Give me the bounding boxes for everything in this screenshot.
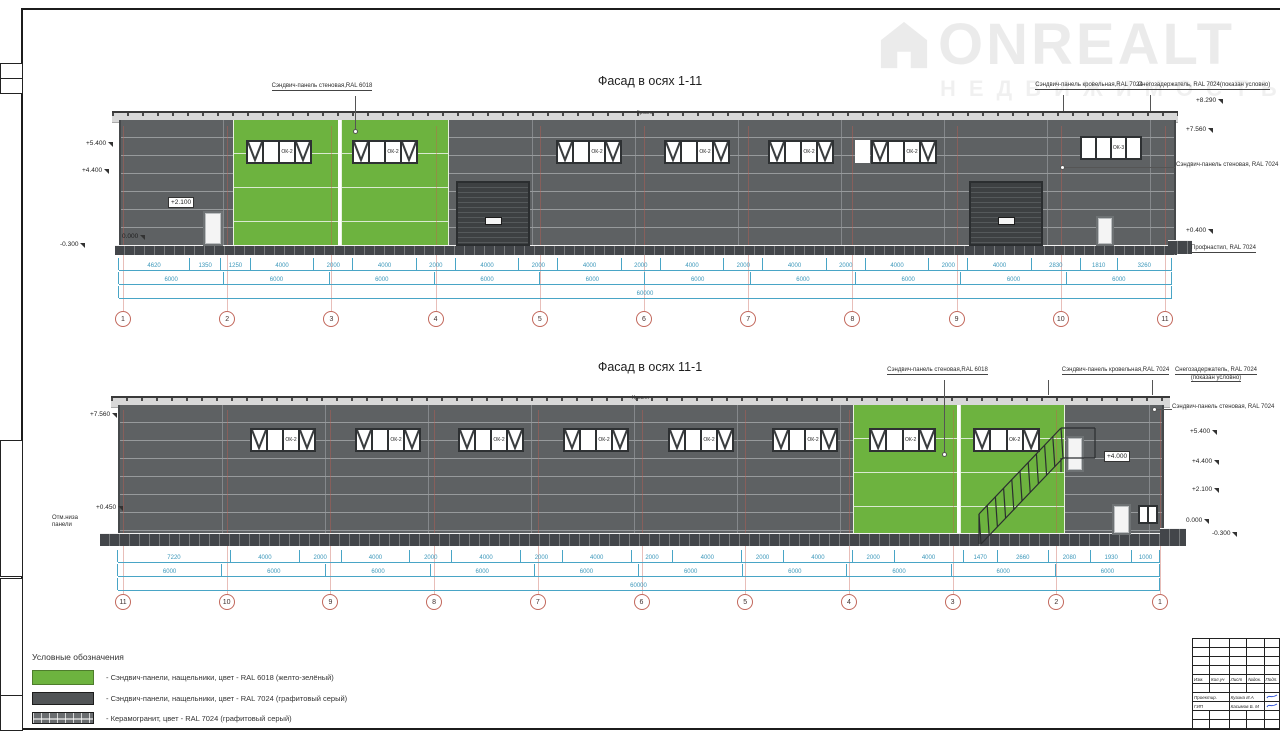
axis-marker: 5 (737, 594, 753, 610)
dimension-value: 4000 (369, 555, 382, 561)
elevation-flag-icon (112, 413, 117, 418)
legend-item-label: - Сэндвич-панели, нащельники, цвет - RAL… (106, 673, 334, 682)
axis-marker: 9 (322, 594, 338, 610)
window-opening-pane (357, 430, 371, 450)
dimension-segment: 4000 (230, 550, 300, 562)
legend-item: - Сэндвич-панели, нащельники, цвет - RAL… (32, 692, 512, 705)
title-block-cell (1229, 639, 1246, 648)
elevation-mark: +4.400 (1192, 458, 1219, 465)
title-block-header: Лист (1229, 675, 1246, 684)
title-block-header: Кол.уч (1209, 675, 1229, 684)
window-ОК-2: ОК-2 (250, 428, 316, 452)
panel-joint (957, 405, 960, 534)
dimension-row: 7220400020004000200040002000400020004000… (118, 550, 1160, 563)
title-block-cell (1264, 666, 1279, 675)
elevation-flag-icon (118, 506, 123, 511)
dimension-segment: 2000 (852, 550, 895, 562)
elevation-flag-icon (1212, 430, 1217, 435)
axis-marker: 11 (115, 594, 131, 610)
dimension-value: 4000 (590, 555, 603, 561)
dimension-value: 6000 (684, 569, 697, 575)
title-block-cell (1264, 657, 1279, 666)
dimension-value: 6000 (371, 569, 384, 575)
window-label: ОК-2 (492, 430, 506, 450)
window-label: ОК-2 (389, 430, 403, 450)
dimension-value: 4000 (811, 555, 824, 561)
window-opening-pane (670, 430, 684, 450)
signature-icon (1266, 693, 1278, 700)
title-block-header: Изм. (1193, 675, 1210, 684)
title-block-cell (1229, 711, 1246, 720)
dimension-value: 6000 (1101, 569, 1114, 575)
elevation-mark: +5.400 (1190, 428, 1217, 435)
dimension-segment: 6000 (221, 564, 326, 576)
dimension-value: 4000 (922, 555, 935, 561)
dimension-row: 6000600060006000600060006000600060006000 (118, 564, 1160, 577)
window-label: ОК-2 (904, 430, 918, 450)
elevation-mark: +4.000 (1104, 451, 1130, 462)
window-opening-pane (920, 430, 934, 450)
green-swatch (32, 670, 94, 685)
dimension-segment: 6000 (846, 564, 951, 576)
title-block-cell (1229, 648, 1246, 657)
title-block-role: Проектир. (1193, 693, 1230, 702)
dimension-value: 1000 (1139, 555, 1152, 561)
dimension-value: 2080 (1063, 555, 1076, 561)
annotation-leader (1156, 409, 1172, 410)
dimension-value: 6000 (997, 569, 1010, 575)
dimension-value: 4000 (258, 555, 271, 561)
title-block-cell (1229, 666, 1246, 675)
title-block-cell (1264, 684, 1279, 693)
window-ОК-2: ОК-2 (355, 428, 421, 452)
elevation-flag-icon (1214, 488, 1219, 493)
signature-icon (1266, 702, 1278, 709)
dimension-value: 2000 (313, 555, 326, 561)
title-block-cell (1209, 639, 1229, 648)
annotation: Сэндвич-панель стеновая, RAL 7024 (1172, 404, 1280, 411)
legend-item: - Сэндвич-панели, нащельники, цвет - RAL… (32, 670, 512, 685)
annotation: Снегозадержатель, RAL 7024(показан услов… (1156, 367, 1276, 382)
dimension-value: 4000 (479, 555, 492, 561)
annotation: Отм.низапанели (52, 515, 92, 528)
axis-marker: 1 (1152, 594, 1168, 610)
title-block-cell (1247, 720, 1264, 729)
axis-grid-line (1160, 410, 1161, 594)
dimension-value: 2000 (535, 555, 548, 561)
dimension-value: 6000 (267, 569, 280, 575)
window-opening-pane (252, 430, 266, 450)
gray-swatch (32, 692, 94, 705)
elevation-flag-icon (1204, 519, 1209, 524)
dimension-segment: 6000 (1055, 564, 1160, 576)
window-pane (476, 430, 490, 450)
window-label: ОК-2 (284, 430, 298, 450)
dimension-value: 4000 (701, 555, 714, 561)
dimension-value: 2000 (756, 555, 769, 561)
dimension-segment: 4000 (341, 550, 411, 562)
dimension-value: 1930 (1105, 555, 1118, 561)
window-opening-pane (565, 430, 579, 450)
dimension-segment: 1930 (1090, 550, 1132, 562)
title-block-name: Касимов Б. М (1229, 702, 1264, 711)
dimension-value: 2000 (867, 555, 880, 561)
window-pane (686, 430, 700, 450)
title-block-cell (1209, 720, 1229, 729)
annotation-leader-dot (1152, 407, 1157, 412)
elevation-flag-icon (1214, 460, 1219, 465)
profnastil-strip (1160, 528, 1186, 538)
dimension-segment: 4000 (451, 550, 521, 562)
dimension-value: 1470 (974, 555, 987, 561)
dimension-value: 6000 (476, 569, 489, 575)
window-opening-pane (774, 430, 788, 450)
dimension-segment: 6000 (534, 564, 639, 576)
dimension-segment: 6000 (638, 564, 743, 576)
title-block-cell (1209, 648, 1229, 657)
window-pane (1149, 507, 1156, 522)
legend-item-label: - Сэндвич-панели, нащельники, цвет - RAL… (106, 694, 347, 703)
dimension-value: 2000 (645, 555, 658, 561)
legend-item-label: - Керамогранит, цвет - RAL 7024 (графито… (106, 714, 292, 723)
dimension-segment: 6000 (742, 564, 847, 576)
legend: Условные обозначения - Сэндвич-панели, н… (32, 652, 512, 724)
dimension-segment: 2000 (631, 550, 674, 562)
axis-marker: 8 (426, 594, 442, 610)
dimension-segment: 7220 (117, 550, 231, 562)
window-opening-pane (405, 430, 419, 450)
title-block-cell (1209, 666, 1229, 675)
title-block-signature (1264, 693, 1279, 702)
title-block-header: Подп. (1264, 675, 1279, 684)
title-block-cell (1264, 720, 1279, 729)
title-block-cell (1264, 639, 1279, 648)
window-pane (887, 430, 901, 450)
drawing-sheet: ONREALT НЕДВИЖИМОСТЬ Фасад в осях 1-11 Ф… (0, 0, 1280, 732)
title-block-cell (1247, 648, 1264, 657)
dimension-segment: 6000 (951, 564, 1056, 576)
title-block-cell (1264, 648, 1279, 657)
dimension-segment: 2000 (299, 550, 342, 562)
window-ОК-2: ОК-2 (668, 428, 734, 452)
title-block-cell (1247, 639, 1264, 648)
title-block-cell (1193, 648, 1210, 657)
window-opening-pane (871, 430, 885, 450)
title-block-signature (1264, 702, 1279, 711)
title-block-role: ГИП (1193, 702, 1230, 711)
title-block-cell (1247, 711, 1264, 720)
dimension-segment: 4000 (562, 550, 632, 562)
annotation: Сэндвич-панель стеновая,RAL 6018 (880, 367, 995, 375)
dimension-segment: 2080 (1048, 550, 1092, 562)
elevation-mark: +0.450 (96, 504, 123, 511)
window-opening-pane (718, 430, 732, 450)
title-block-cell (1209, 711, 1229, 720)
hatch-swatch (32, 712, 94, 724)
dimension-value: 6000 (163, 569, 176, 575)
window-ОК-2: ОК-2 (458, 428, 524, 452)
window-opening-pane (822, 430, 836, 450)
title-block-cell (1209, 657, 1229, 666)
dimension-value: 2660 (1016, 555, 1029, 561)
dimension-value: 7220 (167, 555, 180, 561)
elevation-mark: -0.300 (1212, 530, 1237, 537)
dimension-value: 6000 (788, 569, 801, 575)
elevation-mark: +2.100 (1192, 486, 1219, 493)
title-block-cell (1193, 720, 1210, 729)
window-pane (581, 430, 595, 450)
roof-label: Кровля (626, 395, 656, 401)
window-opening-pane (460, 430, 474, 450)
window-small (1138, 505, 1158, 524)
window-label: ОК-2 (702, 430, 716, 450)
elevation-flag-icon (1232, 532, 1237, 537)
title-block-name: Кузина И.А (1229, 693, 1264, 702)
annotation-leader (1152, 380, 1153, 395)
title-block-cell (1229, 720, 1246, 729)
dimension-value: 6000 (580, 569, 593, 575)
elevation-mark: +7.560 (90, 411, 117, 418)
dimension-segment: 2000 (741, 550, 784, 562)
door (1112, 504, 1131, 535)
axis-marker: 6 (634, 594, 650, 610)
axis-marker: 10 (219, 594, 235, 610)
window-opening-pane (300, 430, 314, 450)
title-block-cell (1247, 684, 1264, 693)
title-block-cell (1193, 666, 1210, 675)
window-ОК-2: ОК-2 (563, 428, 629, 452)
legend-title: Условные обозначения (32, 652, 512, 662)
window-pane (268, 430, 282, 450)
dimension-segment: 4000 (894, 550, 964, 562)
dimension-segment: 1000 (1131, 550, 1160, 562)
dimension-segment: 2000 (409, 550, 452, 562)
dimension-segment: 4000 (783, 550, 853, 562)
dimension-segment: 6000 (325, 564, 430, 576)
dimension-segment: 2000 (520, 550, 563, 562)
dimension-value: 2000 (424, 555, 437, 561)
title-block-cell (1193, 711, 1210, 720)
annotation-leader (1048, 380, 1049, 395)
window-label: ОК-2 (597, 430, 611, 450)
title-block-cell (1247, 666, 1264, 675)
facade-11-1-drawing: Кровля1110987654321ОК-2ОК-2ОК-2ОК-2ОК-2О… (0, 0, 1280, 732)
title-block-cell (1193, 639, 1210, 648)
title-block-cell (1247, 657, 1264, 666)
window-opening-pane (613, 430, 627, 450)
dimension-segment: 4000 (672, 550, 742, 562)
axis-marker: 7 (530, 594, 546, 610)
axis-marker: 4 (841, 594, 857, 610)
dimension-segment: 2660 (997, 550, 1049, 562)
dimension-segment: 60000 (117, 578, 1160, 590)
dimension-segment: 1470 (963, 550, 998, 562)
window-pane (790, 430, 804, 450)
title-block-cell (1209, 684, 1229, 693)
dimension-value: 6000 (892, 569, 905, 575)
title-block: Изм.Кол.учЛист№док.Подп.Проектир.Кузина … (1192, 638, 1280, 729)
title-block-cell (1193, 684, 1210, 693)
elevation-mark: 0.000 (1186, 517, 1209, 524)
axis-marker: 2 (1048, 594, 1064, 610)
window-ОК-2: ОК-2 (772, 428, 838, 452)
dimension-row: 60000 (118, 578, 1160, 591)
title-block-cell (1229, 684, 1246, 693)
dimension-segment: 6000 (117, 564, 222, 576)
title-block-header: №док. (1247, 675, 1264, 684)
window-opening-pane (508, 430, 522, 450)
dimension-value: 60000 (630, 583, 647, 589)
title-block-cell (1264, 711, 1279, 720)
window-label: ОК-2 (806, 430, 820, 450)
window-pane (1140, 507, 1147, 522)
window-pane (373, 430, 387, 450)
axis-marker: 3 (945, 594, 961, 610)
title-block-cell (1193, 657, 1210, 666)
legend-item: - Керамогранит, цвет - RAL 7024 (графито… (32, 712, 512, 724)
annotation-leader-dot (942, 452, 947, 457)
title-block-cell (1229, 657, 1246, 666)
annotation-leader (944, 380, 945, 452)
window-ОК-2: ОК-2 (869, 428, 936, 452)
dimension-segment: 6000 (430, 564, 535, 576)
external-staircase (965, 412, 1105, 548)
